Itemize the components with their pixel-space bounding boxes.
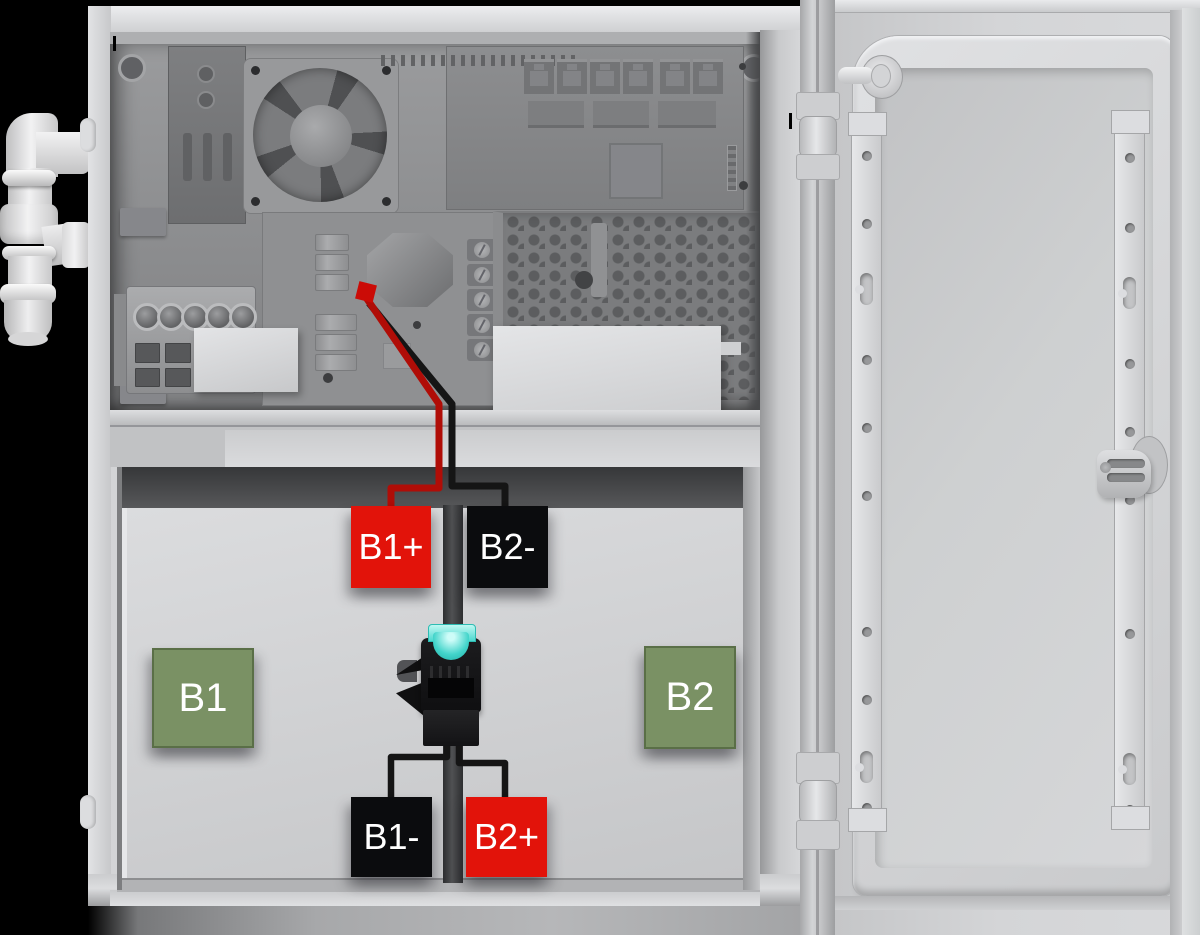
label-b1-positive: B1+ bbox=[351, 506, 431, 588]
label-b2-negative: B2- bbox=[467, 506, 548, 588]
label-b1-negative: B1- bbox=[351, 797, 432, 877]
cam-latch-slot bbox=[1107, 459, 1145, 468]
enclosure-render: B1+ B2- B1 B2 B1- B2+ bbox=[0, 0, 1200, 935]
alignment-mark bbox=[789, 113, 792, 129]
cam-latch-slot bbox=[1107, 473, 1145, 482]
label-battery-b1: B1 bbox=[152, 648, 254, 748]
label-battery-b2: B2 bbox=[644, 646, 736, 749]
wire-b1-positive bbox=[365, 296, 439, 512]
alignment-mark bbox=[113, 36, 116, 51]
pcb-connection-marker bbox=[355, 281, 377, 303]
label-b2-positive: B2+ bbox=[466, 797, 547, 877]
door-stay-core bbox=[871, 64, 891, 88]
wiring-overlay bbox=[0, 0, 1200, 935]
holder-connector bbox=[423, 710, 479, 746]
wire-fuse-to-b2-positive bbox=[459, 740, 505, 801]
cam-latch-screw bbox=[1100, 462, 1111, 473]
wire-fuse-to-b1-negative bbox=[391, 740, 447, 801]
holder-band bbox=[428, 678, 474, 698]
